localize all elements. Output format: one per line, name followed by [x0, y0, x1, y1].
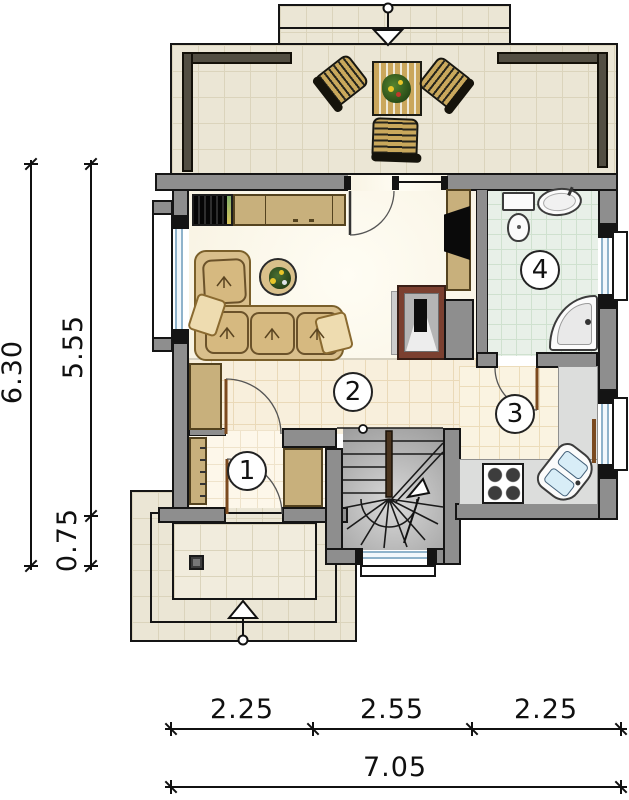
terrace-steps [278, 4, 511, 45]
dim-line-h-total [165, 786, 627, 788]
faucet-icon [585, 319, 591, 325]
porch-column [189, 555, 204, 570]
dim-label-2-55: 2.55 [342, 696, 442, 724]
bookshelf-accent [227, 196, 231, 224]
dim-label-2-25-left: 2.25 [192, 696, 292, 724]
sideboard-divider [332, 196, 333, 224]
wall-right-1 [598, 189, 618, 225]
room-badge-3: 3 [495, 394, 535, 434]
bathroom-window-sill [612, 231, 628, 301]
coat-hook [200, 447, 206, 449]
flower-dot [270, 278, 276, 284]
room-number: 3 [507, 399, 524, 429]
wall-living-bath-partition [476, 189, 488, 368]
wall-entry-bottom-left [158, 507, 226, 523]
dim-label-2-25-right: 2.25 [496, 696, 596, 724]
door-jamb [392, 176, 399, 190]
coat-hook [200, 471, 206, 473]
window-jamb [427, 548, 435, 565]
kitchen-window-sill [612, 397, 628, 471]
coat-hook [200, 483, 206, 485]
door-jamb [441, 176, 448, 190]
stairwell-floor [343, 428, 443, 550]
wall-right-2 [598, 307, 618, 391]
door-jamb [344, 176, 351, 190]
stairwell-window [363, 551, 427, 559]
wall-stairwell-bottom-left [325, 548, 357, 565]
basin-inner [542, 191, 577, 212]
coat-rack [189, 437, 207, 505]
room-badge-4: 4 [520, 250, 560, 290]
wall-stub-entry-right [282, 428, 337, 448]
kitchen-window [601, 404, 609, 464]
window-jamb [172, 216, 189, 229]
room-badge-1: 1 [227, 451, 267, 491]
fireplace-firebox [414, 299, 427, 332]
tv [444, 206, 470, 260]
toilet-tank [502, 192, 535, 211]
terrace-railing-right-v [597, 52, 608, 168]
terrace-railing-left-v [182, 52, 193, 172]
dim-line-v-total [30, 160, 32, 570]
stove [482, 463, 524, 504]
wall-right-3 [598, 477, 618, 520]
handle [293, 219, 298, 222]
wall-bath-bottom-left [476, 352, 498, 368]
wall-left-upper [172, 189, 189, 217]
room-number: 2 [345, 377, 362, 407]
terrace-glazing [396, 181, 444, 183]
flower-dot [398, 80, 403, 85]
living-room-window [175, 229, 183, 331]
sideboard-divider [265, 196, 266, 224]
wardrobe [283, 448, 323, 507]
flower-dot [396, 92, 401, 97]
sideboard [233, 194, 346, 226]
bookshelf [192, 194, 233, 226]
dim-label-7-05: 7.05 [345, 754, 445, 782]
bathroom-window [601, 238, 609, 294]
bay-side-bottom [152, 337, 173, 352]
coat-hook [200, 459, 206, 461]
handle [309, 219, 314, 222]
flush-dot [517, 225, 521, 229]
sofa-cushion [250, 312, 295, 355]
room-badge-2: 2 [333, 372, 373, 412]
wall-kitchen-bottom [455, 503, 618, 520]
faucet-icon [574, 479, 581, 486]
coffee-table [259, 258, 297, 296]
window-jamb [355, 548, 363, 565]
window-jamb [172, 329, 189, 342]
terrace-plant-icon [382, 74, 411, 103]
coat-hook [200, 495, 206, 497]
wall-left-lower [172, 342, 189, 523]
flower-dot [282, 280, 287, 285]
dim-line-v-inner [90, 160, 92, 570]
toilet-bowl [507, 213, 530, 242]
fireplace-side-wall [444, 299, 474, 360]
wicker-chair-bottom [371, 117, 418, 161]
hall-cabinet [189, 363, 222, 430]
terrace-step-edge [280, 27, 509, 29]
dim-line-h-segments [165, 728, 627, 730]
dim-label-5-55: 5.55 [60, 297, 88, 397]
room-number: 1 [239, 456, 256, 486]
chair-back [371, 152, 421, 163]
terrace-railing-right-h [497, 52, 608, 64]
dim-label-6-30: 6.30 [0, 322, 27, 422]
terrace-railing-left-h [182, 52, 292, 64]
stairwell-window-sill [360, 565, 436, 577]
dim-label-0-75: 0.75 [54, 490, 82, 590]
kitchen-radiator [592, 419, 596, 463]
room-number: 4 [532, 255, 549, 285]
bay-window-box [152, 213, 173, 339]
flower-dot [388, 86, 394, 92]
flower-dot [279, 270, 284, 275]
floor-plan: 1 2 3 4 6.30 5.55 0.75 2.25 2.55 2.25 7.… [0, 0, 629, 800]
